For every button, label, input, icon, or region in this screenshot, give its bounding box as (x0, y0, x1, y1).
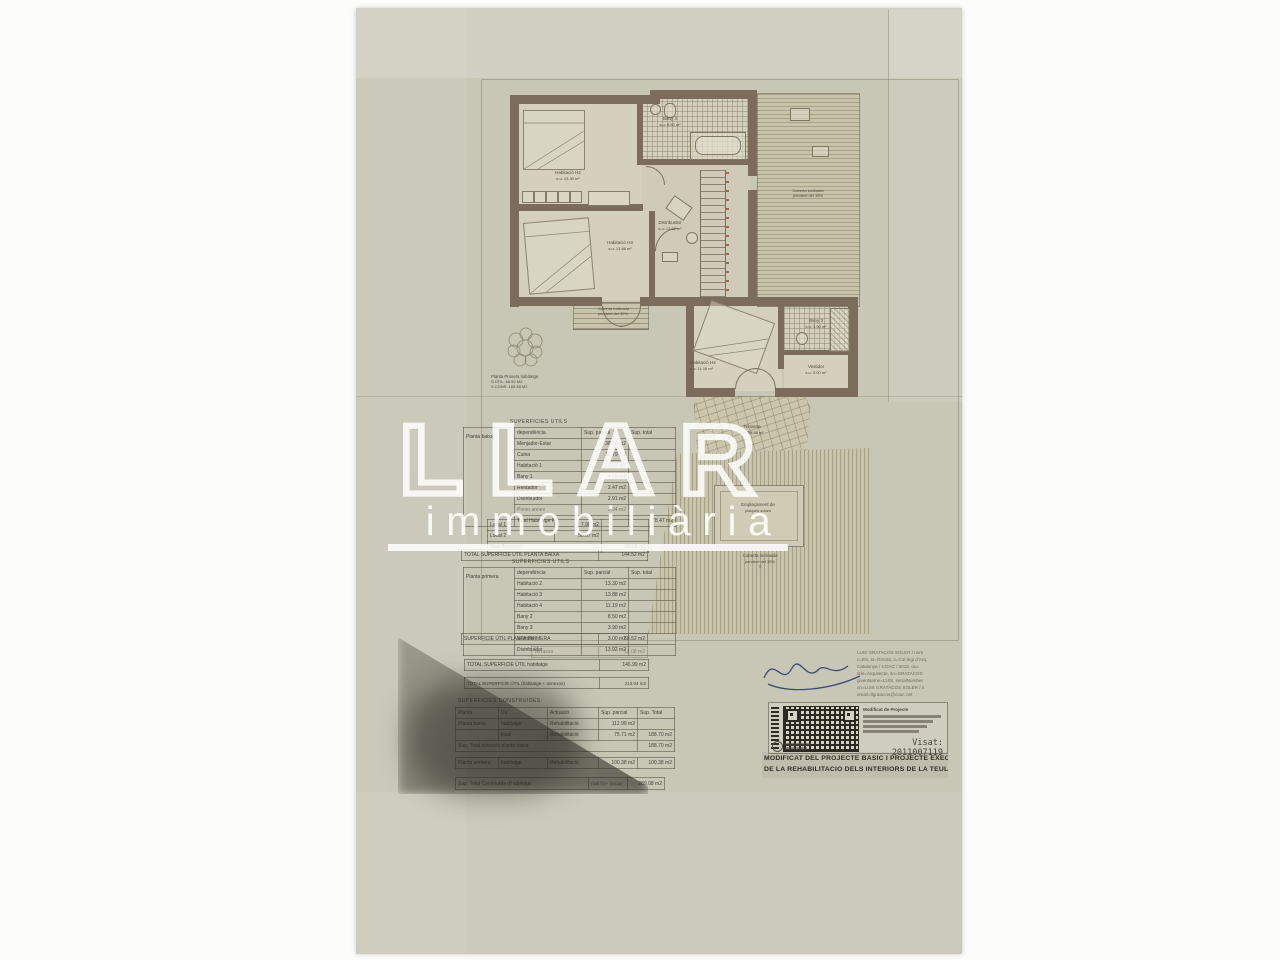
signature-line: cn=LUIS GRATACOS SOLER / n (857, 684, 945, 691)
room-label-h2: Habitació H2s.u: 13.30 m² (540, 170, 596, 181)
digital-signature-block: LUIS GRATACOS SOLER / num c=ES, st=Giron… (857, 649, 945, 698)
wall-segment (748, 190, 757, 306)
wall-segment (650, 90, 756, 99)
bathtub-basin (695, 136, 741, 155)
cell (629, 623, 676, 634)
qr-finder (843, 709, 856, 722)
table-row: TOTAL SUPERFICIE ÚTIL habitatge146.99 m2 (465, 660, 649, 671)
signature-line: email=llgratacos@coac.net (857, 691, 945, 698)
visat-stamp-box: Modificat de Projecte Visat: 2011007119 (768, 702, 948, 754)
room-label-h4: Habitació H4s.u: 11.19 m² (690, 360, 736, 371)
room-label-h3: Habitació H3s.u: 13.88 m² (592, 240, 648, 251)
total-value-cell: 68.52 m2 (599, 634, 648, 645)
header-cell: Sup. parcial (582, 568, 629, 579)
cell (629, 612, 676, 623)
garden-bush (502, 324, 548, 370)
total-value-cell: 188.70 m2 (638, 741, 675, 752)
shower-hatch (830, 308, 850, 352)
architect-signature (760, 648, 865, 692)
roof-east-hatch (757, 93, 860, 307)
coac-circle-icon (772, 741, 783, 752)
illegible-text-line (863, 715, 941, 718)
wall-segment (637, 95, 643, 165)
signature-line: c=ES, st=Girona, o=Col·legi d'Arq. (857, 656, 945, 663)
scanned-floorplan-document: Habitació H2s.u: 13.30 m² Habitació H3s.… (0, 0, 1280, 960)
project-title-line2: DE LA REHABILITACIÓ DELS INTERIORS DE LA… (764, 766, 948, 773)
toilet-icon (796, 332, 808, 345)
cell: Terrassa (532, 647, 599, 658)
cell: 75.71 m2 (599, 730, 638, 741)
stair-step-numbers (726, 172, 729, 296)
watermark-subtitle: immobiliària (414, 498, 794, 545)
wardrobe-cell (558, 191, 570, 203)
watermark-underline (388, 544, 788, 551)
wardrobe-cell (570, 191, 582, 203)
signature-line: title=Arquitecte, sn=GRATACOS (857, 670, 945, 677)
total-value-cell: 146.99 m2 (600, 660, 649, 671)
illegible-text-line (785, 747, 807, 750)
cell: 8.50 m2 (582, 612, 629, 623)
cell: 188.70 m2 (638, 730, 675, 741)
cell: 11.19 m2 (582, 601, 629, 612)
table-row: SUPERFICIE ÚTIL PLANTA PRIMERA68.52 m2 (462, 634, 648, 645)
wall-segment (510, 297, 602, 306)
header-cell: Sup. total (629, 568, 676, 579)
table-title-utils-p1: SUPERFICIES UTILS (512, 559, 569, 565)
cell (629, 579, 676, 590)
skylight-2 (812, 146, 829, 157)
cell: 13.30 m2 (582, 579, 629, 590)
staircase (700, 170, 726, 298)
cell: Habitació 4 (515, 601, 582, 612)
scan-shadow-core (408, 680, 578, 795)
sink-icon (650, 104, 661, 115)
wall-segment (686, 297, 694, 397)
hall-bench (662, 252, 678, 262)
cell: 100.38 m2 (638, 758, 675, 769)
wardrobe-cells (522, 191, 582, 205)
cell (629, 590, 676, 601)
total-label-cell: SUPERFICIE ÚTIL PLANTA PRIMERA (462, 634, 599, 645)
table-total-p1: SUPERFICIE ÚTIL PLANTA PRIMERA68.52 m2 (461, 633, 648, 645)
total-value-cell: 144.52 m2 (599, 550, 648, 561)
header-cell: Sup. parcial (599, 708, 638, 719)
cell: Bany 2 (515, 612, 582, 623)
cell (638, 719, 675, 730)
cell: 112.99 m2 (599, 719, 638, 730)
wall-segment (778, 305, 784, 369)
plan-summary-label: Planta Primera habitatge S.ÚTIL: 68.52 M… (491, 374, 575, 389)
wall-segment (510, 95, 519, 307)
room-label-bany2: Bany 2s.u: 8.50 m² (650, 116, 690, 127)
illegible-text-line (863, 730, 919, 733)
room-label-distribuidor: Distribuïdors.u: 13.92 m² (644, 220, 696, 231)
cell: Habitació 2 (515, 579, 582, 590)
slope-arrow-icon: ▽ (728, 564, 792, 569)
wardrobe-cell (534, 191, 546, 203)
hall-stool (686, 232, 698, 244)
signature-line: givenName=LUIS, serialNumber (857, 677, 945, 684)
table-total-habitatge: TOTAL SUPERFICIE ÚTIL habitatge146.99 m2 (464, 659, 649, 671)
table-row: Planta primera dependència Sup. parcial … (464, 568, 676, 579)
wardrobe-cell (522, 191, 534, 203)
cell: Bany 3 (515, 623, 582, 634)
qr-finder (786, 709, 799, 722)
bed-h2 (523, 110, 585, 170)
stamp-heading: Modificat de Projecte (863, 707, 943, 712)
illegible-text-line (863, 720, 933, 723)
wall-segment (686, 388, 735, 397)
roof-label-east: Coberta inclinadapendent del 35% (766, 188, 850, 198)
wall-segment (640, 297, 690, 306)
cell (629, 601, 676, 612)
total-label-cell: TOTAL SUPERFICIE ÚTIL habitatge (465, 660, 600, 671)
room-label-vestidor: Vestidors.u: 3.00 m² (792, 364, 840, 375)
closet-box (588, 191, 630, 206)
wardrobe-cell (546, 191, 558, 203)
cell: Habitació 3 (515, 590, 582, 601)
roof-label-walkway: Coberta inclinadapendent del 35% (598, 306, 646, 316)
illegible-text-line (863, 725, 927, 728)
header-cell: Sup. Total (638, 708, 675, 719)
table-terrassa-row: Terrassa12.08 m2 (531, 646, 648, 658)
project-title-line1: MODIFICAT DEL PROJECTE BÀSIC I PROJECTE … (764, 755, 948, 762)
header-cell: dependència (515, 568, 582, 579)
skylight-1 (790, 108, 810, 121)
total-value-cell: 213.04 m2 (600, 678, 649, 689)
cell: 3.90 m2 (582, 623, 629, 634)
table-row: Terrassa12.08 m2 (532, 647, 648, 658)
cell: 12.08 m2 (599, 647, 648, 658)
cell: 13.88 m2 (582, 590, 629, 601)
room-label-bany3: Bany 3s.u: 3.90 m² (794, 318, 838, 329)
roof-label-south: Coberta inclinadapendent del 35% ▽ (728, 553, 792, 569)
signature-line: Catalunya / COAC / 0013, ou= (857, 663, 945, 670)
wall-segment (775, 388, 858, 397)
signature-line: LUIS GRATACOS SOLER / num (857, 649, 945, 656)
illegible-text-line (785, 743, 811, 746)
bed-h3 (523, 217, 595, 294)
